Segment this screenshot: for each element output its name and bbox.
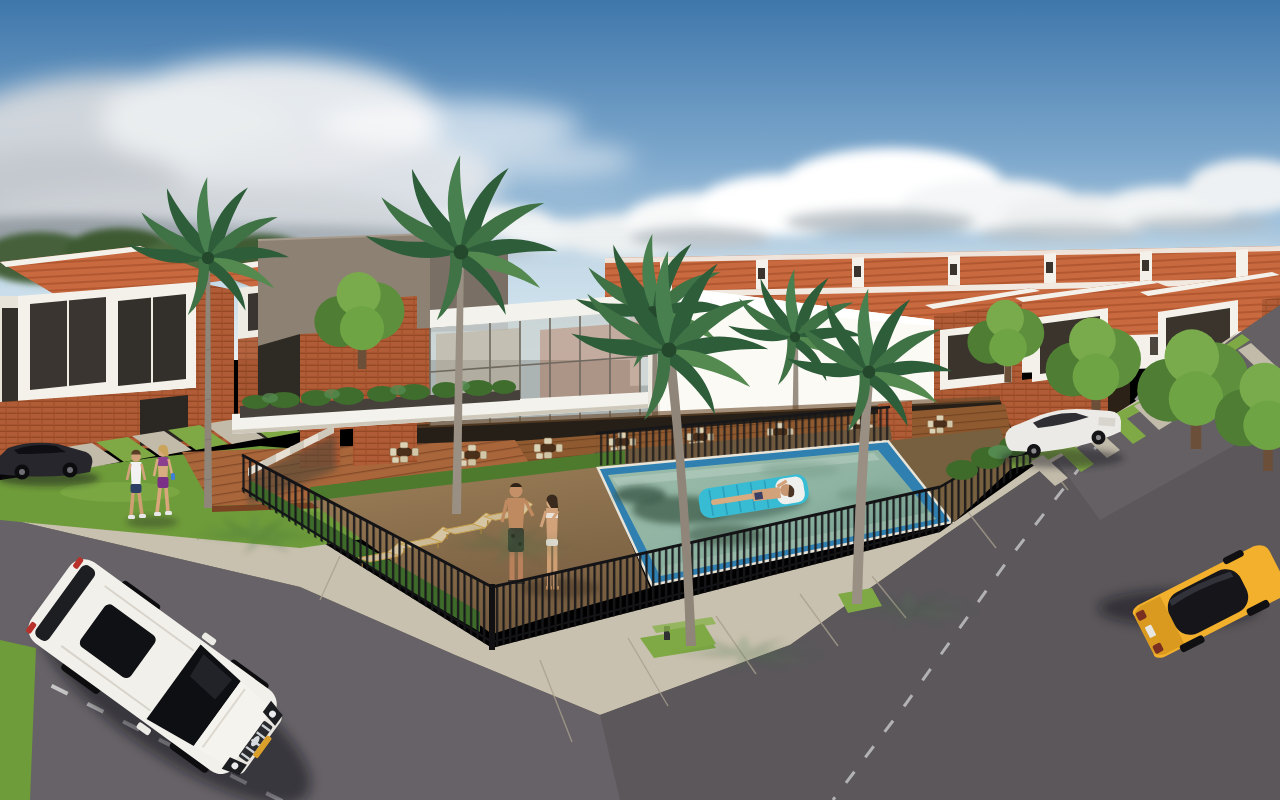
corner-grass-wedge: [0, 640, 36, 800]
water-bottle: [171, 473, 175, 480]
architectural-rendering: [0, 0, 1280, 800]
fence-corner-post: [489, 584, 495, 650]
